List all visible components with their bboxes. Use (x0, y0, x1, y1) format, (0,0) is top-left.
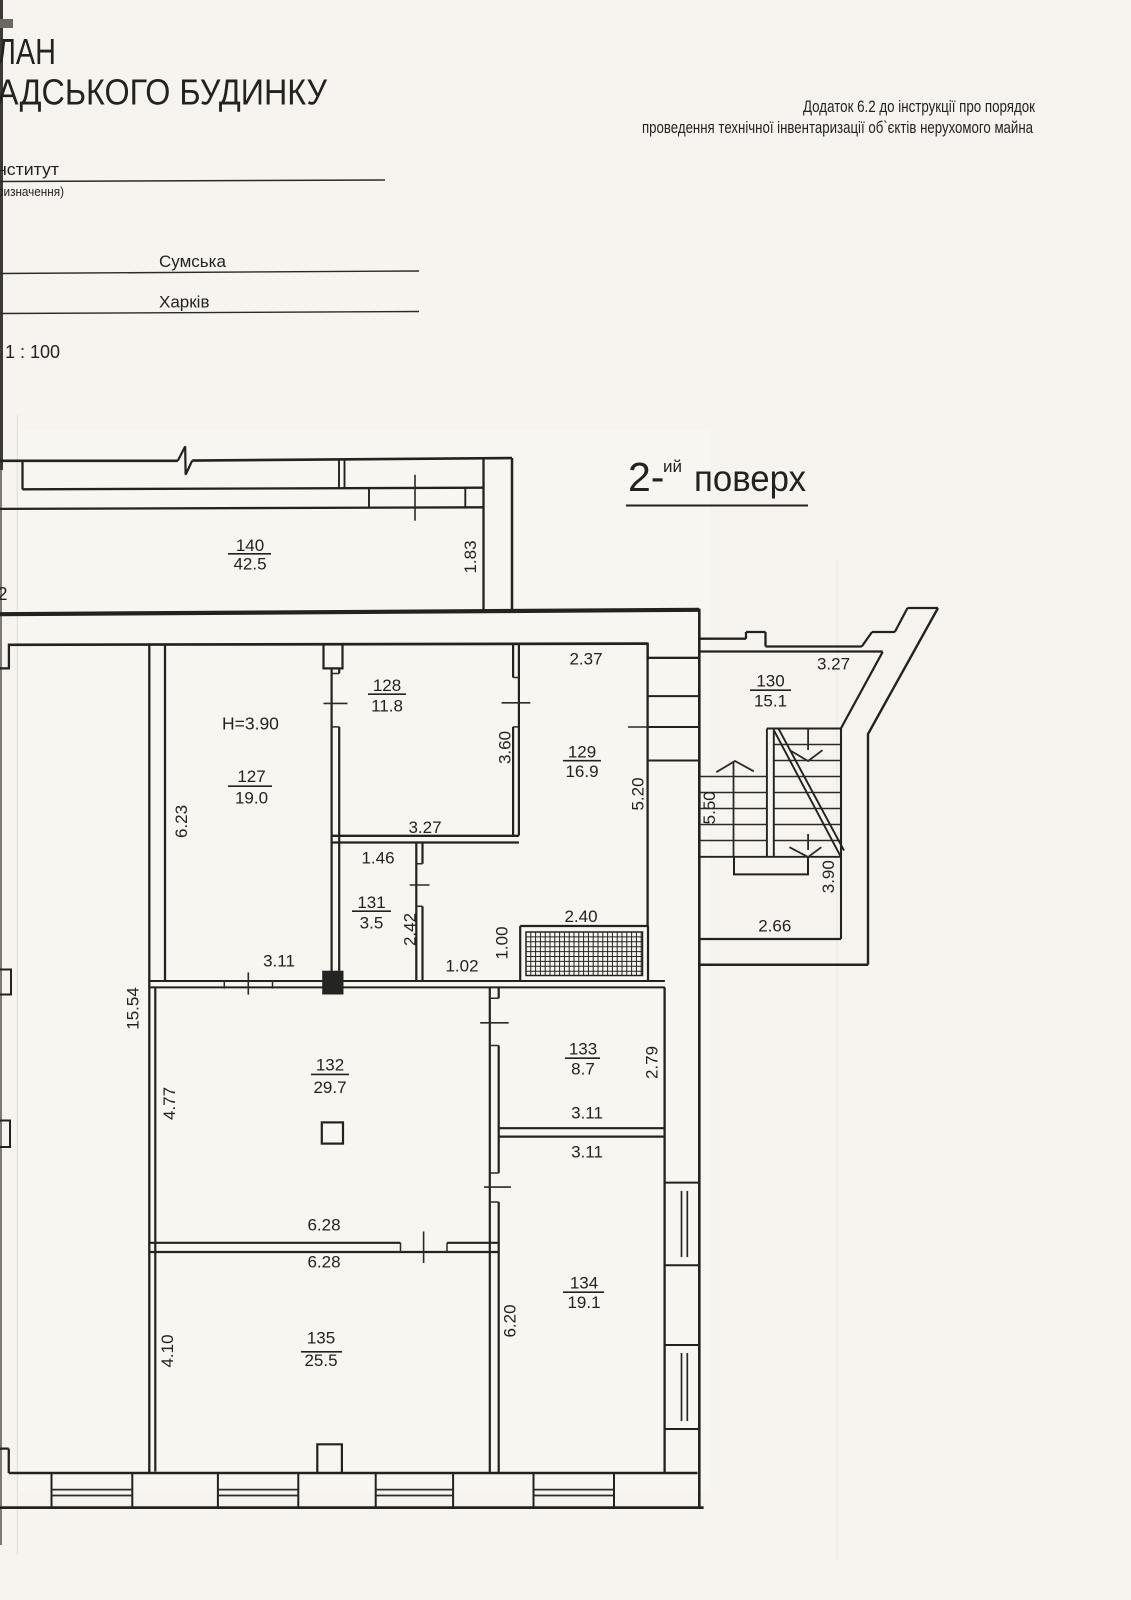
svg-text:3.27: 3.27 (408, 818, 441, 837)
svg-text:131: 131 (357, 893, 385, 912)
svg-text:Сумська: Сумська (159, 252, 226, 271)
svg-text:2.79: 2.79 (643, 1046, 662, 1079)
svg-text:127: 127 (237, 767, 265, 786)
svg-text:133: 133 (569, 1040, 597, 1059)
svg-text:2.42: 2.42 (401, 913, 420, 946)
svg-text:42.5: 42.5 (233, 555, 266, 574)
svg-text:3.60: 3.60 (496, 731, 515, 764)
svg-text:19.1: 19.1 (567, 1293, 600, 1312)
svg-text:4.10: 4.10 (158, 1334, 177, 1367)
svg-text:19.0: 19.0 (235, 789, 268, 808)
svg-text:5.50: 5.50 (700, 791, 719, 824)
svg-text:2.66: 2.66 (758, 917, 791, 936)
svg-text:4.77: 4.77 (160, 1087, 179, 1120)
svg-text:ЛАН: ЛАН (0, 31, 56, 72)
svg-text:1.46: 1.46 (361, 849, 394, 868)
svg-text:11.8: 11.8 (371, 697, 403, 716)
svg-text:ий: ий (663, 457, 682, 476)
svg-text:132: 132 (316, 1056, 344, 1075)
svg-text:129: 129 (568, 743, 596, 762)
svg-text:1.00: 1.00 (493, 926, 512, 959)
svg-text:H=3.90: H=3.90 (222, 714, 279, 734)
svg-text:2-: 2- (628, 454, 664, 500)
svg-text:6.20: 6.20 (501, 1304, 520, 1337)
svg-text:3.5: 3.5 (360, 914, 384, 933)
svg-text:3.11: 3.11 (571, 1104, 603, 1123)
svg-text:15.1: 15.1 (754, 692, 787, 711)
svg-text:128: 128 (373, 676, 401, 695)
svg-text:6.28: 6.28 (307, 1253, 340, 1272)
svg-text:1.83: 1.83 (461, 540, 480, 573)
svg-text:130: 130 (756, 672, 784, 691)
svg-text:Харків: Харків (159, 293, 210, 312)
svg-text:16.9: 16.9 (565, 762, 598, 781)
svg-text:3.90: 3.90 (819, 860, 838, 893)
svg-text:15.54: 15.54 (124, 987, 143, 1030)
svg-text:3.27: 3.27 (817, 655, 850, 674)
svg-text:1 : 100: 1 : 100 (5, 342, 60, 362)
svg-text:134: 134 (570, 1274, 598, 1293)
svg-text:6.23: 6.23 (172, 805, 191, 838)
svg-text:6.28: 6.28 (307, 1216, 340, 1235)
svg-text:25.5: 25.5 (304, 1351, 337, 1370)
svg-text:проведення технічної інвентари: проведення технічної інвентаризації об`є… (642, 119, 1034, 137)
svg-text:1.02: 1.02 (445, 957, 478, 976)
svg-text:2: 2 (0, 584, 8, 604)
svg-text:нститут: нститут (0, 160, 59, 179)
svg-text:Додаток 6.2 до інструкції про: Додаток 6.2 до інструкції про порядок (803, 98, 1036, 116)
svg-text:поверх: поверх (694, 458, 806, 499)
svg-text:ризначення): ризначення) (0, 184, 64, 199)
svg-text:29.7: 29.7 (313, 1078, 346, 1097)
svg-text:5.20: 5.20 (629, 777, 648, 810)
svg-text:140: 140 (236, 536, 264, 555)
svg-text:8.7: 8.7 (571, 1060, 595, 1079)
svg-text:2.37: 2.37 (569, 650, 602, 669)
svg-text:3.11: 3.11 (263, 952, 295, 971)
svg-text:2.40: 2.40 (564, 907, 597, 926)
svg-text:3.11: 3.11 (571, 1143, 603, 1162)
svg-text:АДСЬКОГО БУДИНКУ: АДСЬКОГО БУДИНКУ (0, 72, 328, 113)
svg-text:135: 135 (307, 1329, 335, 1348)
